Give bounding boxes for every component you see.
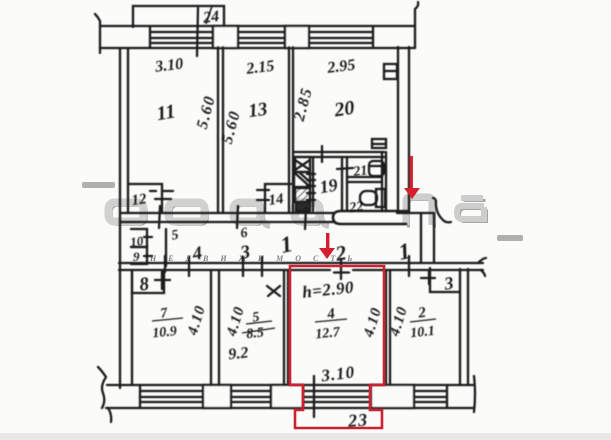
- svg-text:19: 19: [318, 175, 339, 198]
- svg-text:3.10: 3.10: [319, 362, 356, 385]
- svg-text:2.15: 2.15: [244, 58, 275, 78]
- svg-text:5: 5: [170, 228, 179, 244]
- svg-text:12.7: 12.7: [315, 325, 342, 343]
- svg-text:4.10: 4.10: [185, 303, 209, 338]
- svg-text:4.10: 4.10: [224, 304, 248, 339]
- svg-text:4.10: 4.10: [361, 305, 385, 340]
- svg-text:10.9: 10.9: [152, 324, 178, 341]
- svg-text:3.10: 3.10: [153, 55, 184, 75]
- svg-text:12: 12: [131, 191, 149, 209]
- svg-text:5.60: 5.60: [194, 94, 219, 131]
- svg-text:10: 10: [129, 233, 144, 250]
- svg-text:11: 11: [155, 100, 177, 125]
- svg-text:h=2.90: h=2.90: [301, 278, 355, 302]
- svg-text:9.2: 9.2: [228, 344, 250, 363]
- svg-text:21: 21: [352, 163, 369, 180]
- svg-text:20: 20: [332, 97, 356, 122]
- svg-text:8.5: 8.5: [246, 325, 265, 342]
- svg-text:22: 22: [348, 199, 365, 216]
- svg-text:2.85: 2.85: [291, 86, 316, 124]
- svg-text:23: 23: [346, 409, 368, 430]
- svg-text:6: 6: [239, 226, 248, 242]
- svg-text:3: 3: [442, 273, 455, 294]
- svg-text:13: 13: [247, 99, 269, 122]
- svg-text:1: 1: [396, 238, 412, 265]
- svg-text:2.95: 2.95: [325, 57, 356, 77]
- svg-text:10.1: 10.1: [410, 324, 436, 341]
- svg-text:9: 9: [133, 249, 140, 264]
- svg-text:2: 2: [416, 305, 427, 322]
- svg-text:14: 14: [268, 191, 286, 209]
- svg-text:8: 8: [138, 274, 151, 296]
